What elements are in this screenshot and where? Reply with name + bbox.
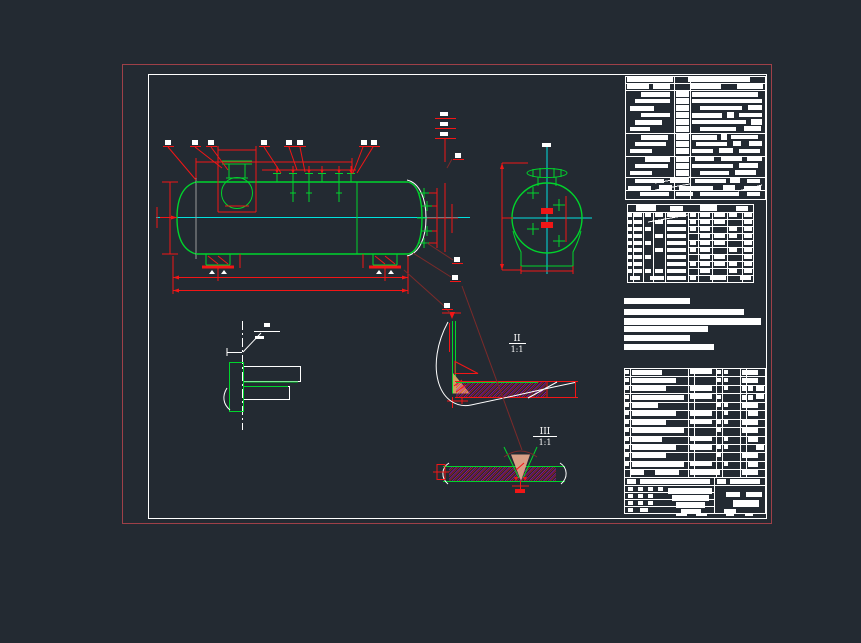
redacted-text	[634, 248, 642, 252]
redacted-text	[744, 213, 752, 217]
redacted-text	[630, 127, 650, 131]
redacted-text	[748, 105, 762, 110]
redacted-text	[717, 479, 726, 484]
redacted-text	[742, 386, 747, 391]
end-view-label	[542, 143, 551, 147]
redacted-text	[690, 419, 712, 424]
end-view-nozzle-marks	[527, 187, 565, 247]
redacted-text	[690, 220, 696, 224]
redacted-text	[634, 227, 642, 231]
redacted-text	[627, 84, 649, 89]
redacted-text	[625, 420, 629, 424]
balloon-number	[261, 140, 267, 145]
redacted-text	[730, 178, 740, 183]
redacted-text	[645, 227, 651, 231]
redacted-text	[690, 213, 696, 217]
technical-characteristics-table	[625, 76, 766, 200]
front-view	[156, 146, 470, 294]
redacted-text	[667, 241, 686, 245]
balloon-number	[454, 257, 460, 262]
redacted-text	[744, 234, 752, 238]
redacted-text	[756, 386, 764, 391]
redacted-note-line	[624, 326, 708, 332]
balloon-number	[192, 140, 198, 145]
redacted-text	[648, 487, 653, 491]
redacted-text	[627, 479, 636, 484]
redacted-text	[724, 403, 728, 407]
redacted-text	[667, 234, 686, 238]
detail-3-scale: 1:1	[539, 438, 552, 447]
redacted-text	[632, 386, 666, 391]
redacted-text	[625, 395, 629, 399]
detail-reference-label	[447, 153, 464, 168]
redacted-text	[717, 428, 721, 432]
redacted-text	[747, 192, 760, 196]
redacted-text	[726, 492, 740, 497]
redacted-text	[667, 213, 686, 217]
balloon-number	[371, 140, 377, 145]
redacted-text	[717, 420, 721, 424]
redacted-text	[690, 248, 696, 252]
redacted-text	[717, 395, 721, 399]
redacted-text	[700, 127, 736, 131]
redacted-text	[744, 241, 752, 245]
redacted-text	[628, 501, 633, 505]
detail-weld-section	[224, 321, 301, 430]
redacted-text	[724, 445, 728, 449]
redacted-text	[655, 248, 663, 252]
redacted-text	[724, 370, 728, 374]
redacted-text	[724, 462, 728, 466]
redacted-text	[635, 164, 668, 168]
redacted-text	[628, 255, 632, 259]
balloon-number	[452, 275, 458, 280]
redacted-text	[724, 378, 728, 382]
redacted-text	[733, 500, 759, 507]
redacted-text	[727, 112, 734, 118]
detail-2-scale: 1:1	[511, 345, 524, 354]
balloon-number	[286, 140, 292, 145]
redacted-text	[744, 126, 761, 131]
redacted-text	[641, 92, 670, 97]
redacted-text	[730, 479, 760, 484]
detail-reference-label	[413, 253, 461, 282]
balloon-number	[165, 140, 171, 145]
redacted-text	[748, 395, 753, 400]
redacted-text	[729, 234, 737, 238]
redacted-text	[635, 99, 670, 103]
stacked-dimension-labels	[435, 112, 456, 162]
redacted-text	[700, 234, 710, 238]
redacted-text	[744, 186, 761, 190]
top-nozzles	[262, 166, 356, 202]
item-balloon	[206, 140, 228, 170]
redacted-text	[717, 403, 721, 407]
redacted-text	[714, 220, 725, 224]
redacted-text	[744, 227, 752, 231]
redacted-text	[645, 157, 670, 162]
redacted-text	[692, 99, 762, 103]
redacted-text	[717, 445, 721, 449]
redacted-text	[655, 234, 663, 238]
redacted-text	[714, 255, 725, 259]
redacted-text	[676, 134, 689, 140]
redacted-text	[638, 501, 643, 505]
parts-list-table	[624, 368, 766, 478]
redacted-text	[645, 241, 651, 245]
redacted-text	[748, 462, 758, 467]
redacted-text	[676, 170, 689, 176]
redacted-text	[700, 269, 710, 273]
redacted-text	[731, 135, 758, 139]
redacted-text	[681, 509, 701, 513]
redacted-text	[695, 179, 726, 183]
redacted-text	[700, 227, 710, 231]
redacted-text	[634, 234, 642, 238]
redacted-text	[641, 135, 668, 140]
redacted-text	[667, 276, 686, 280]
redacted-text	[748, 386, 753, 391]
redacted-text	[676, 126, 689, 132]
redacted-text	[636, 205, 656, 211]
redacted-text	[742, 403, 758, 408]
redacted-text	[714, 262, 725, 266]
redacted-text	[628, 269, 632, 273]
redacted-text	[742, 470, 758, 475]
redacted-text	[717, 378, 721, 382]
item-balloon	[284, 140, 297, 170]
redacted-text	[628, 220, 632, 224]
redacted-text	[667, 227, 686, 231]
redacted-text	[721, 134, 727, 140]
redacted-text	[723, 185, 735, 190]
redacted-text	[640, 508, 648, 512]
redacted-text	[676, 112, 689, 118]
redacted-text	[690, 394, 712, 399]
redacted-text	[690, 369, 712, 374]
redacted-text	[736, 206, 748, 211]
redacted-note-line	[624, 344, 714, 350]
redacted-text	[700, 241, 710, 245]
redacted-text	[729, 269, 737, 273]
redacted-text	[690, 227, 696, 231]
detail-2-label: II	[513, 334, 521, 344]
redacted-text	[696, 513, 707, 516]
redacted-text	[740, 276, 751, 280]
redacted-text	[627, 77, 673, 82]
redacted-text	[676, 105, 689, 111]
redacted-text	[625, 411, 629, 415]
redacted-text	[628, 213, 632, 217]
nozzle-table	[627, 205, 754, 283]
detail-3: III 1:1	[433, 427, 566, 493]
redacted-text	[634, 269, 642, 273]
redacted-note-line	[624, 298, 690, 304]
redacted-text	[744, 255, 752, 259]
redacted-text	[690, 386, 712, 391]
redacted-text	[696, 142, 727, 146]
redacted-text	[653, 84, 670, 89]
redacted-text	[710, 276, 726, 280]
redacted-text	[628, 487, 633, 491]
redacted-text	[632, 370, 662, 375]
redacted-text	[632, 428, 684, 433]
redacted-text	[737, 84, 763, 89]
redacted-text	[628, 508, 633, 512]
redacted-text	[635, 120, 662, 125]
redacted-text	[658, 487, 663, 491]
redacted-text	[751, 119, 762, 125]
redacted-text	[625, 437, 629, 441]
detail-3-label: III	[540, 427, 551, 437]
item-balloon	[190, 140, 222, 168]
redacted-text	[692, 164, 733, 168]
redacted-text	[690, 445, 712, 450]
redacted-text	[739, 113, 762, 117]
redacted-text	[628, 186, 651, 190]
redacted-text	[690, 262, 696, 266]
redacted-text	[625, 445, 629, 449]
redacted-text	[648, 501, 653, 505]
redacted-text	[729, 213, 737, 217]
redacted-text	[690, 436, 712, 441]
redacted-text	[692, 135, 717, 140]
redacted-text	[645, 255, 651, 259]
redacted-text	[733, 141, 741, 146]
redacted-text	[688, 77, 750, 82]
redacted-text	[745, 513, 753, 516]
redacted-text	[676, 148, 689, 154]
redacted-text	[692, 92, 758, 97]
redacted-text	[625, 378, 629, 382]
redacted-text	[700, 220, 710, 224]
redacted-text	[625, 428, 629, 432]
item-balloon	[259, 140, 281, 173]
detail-2: II 1:1	[436, 312, 578, 408]
redacted-note-line	[624, 318, 761, 325]
redacted-text	[742, 378, 758, 383]
redacted-text	[630, 470, 644, 475]
technical-notes	[624, 298, 761, 350]
redacted-text	[655, 269, 663, 273]
redacted-text	[724, 420, 728, 424]
redacted-text	[634, 241, 642, 245]
redacted-text	[676, 192, 693, 196]
redacted-text	[672, 495, 709, 501]
redacted-text	[641, 113, 670, 117]
redacted-text	[729, 262, 737, 266]
saddle-left	[202, 254, 240, 274]
redacted-note-line	[624, 335, 690, 341]
redacted-text	[632, 395, 684, 400]
redacted-text	[692, 149, 713, 153]
redacted-text	[625, 370, 629, 374]
redacted-text	[676, 91, 689, 97]
redacted-text	[632, 445, 676, 450]
redacted-text	[724, 411, 728, 415]
redacted-text	[724, 386, 728, 390]
cad-drawing-canvas: II 1:1 III 1:1	[0, 0, 861, 643]
redacted-text	[625, 403, 629, 407]
redacted-text	[712, 470, 720, 475]
redacted-text	[739, 149, 760, 153]
redacted-text	[676, 141, 689, 147]
redacted-text	[628, 234, 632, 238]
redacted-text	[640, 479, 710, 484]
redacted-text	[628, 241, 632, 245]
redacted-text	[724, 509, 736, 513]
redacted-text	[735, 170, 756, 175]
redacted-text	[742, 370, 758, 375]
redacted-text	[667, 269, 686, 273]
redacted-text	[635, 142, 666, 146]
redacted-text	[667, 248, 686, 252]
redacted-text	[756, 444, 764, 450]
redacted-text	[679, 186, 713, 190]
redacted-text	[700, 262, 710, 266]
redacted-text	[650, 276, 664, 280]
redacted-text	[632, 437, 662, 442]
balloon-number	[297, 140, 303, 145]
redacted-text	[726, 513, 734, 516]
redacted-text	[628, 248, 632, 252]
redacted-text	[667, 220, 686, 224]
redacted-text	[692, 120, 746, 124]
redacted-text	[746, 492, 762, 497]
redacted-text	[676, 502, 705, 508]
redacted-text	[625, 386, 629, 390]
redacted-text	[729, 227, 737, 231]
item-balloon	[357, 140, 380, 173]
redacted-text	[700, 213, 710, 217]
redacted-text	[676, 163, 689, 169]
redacted-text	[632, 462, 684, 467]
redacted-text	[676, 156, 689, 162]
redacted-text	[700, 248, 710, 252]
redacted-text	[690, 461, 712, 466]
redacted-text	[676, 513, 687, 516]
redacted-text	[634, 213, 642, 217]
redacted-text	[714, 213, 725, 217]
redacted-text	[667, 255, 686, 259]
redacted-text	[676, 98, 689, 104]
redacted-text	[638, 487, 643, 491]
redacted-text	[748, 437, 758, 442]
redacted-text	[717, 453, 721, 457]
redacted-text	[691, 84, 721, 89]
redacted-text	[747, 179, 760, 183]
redacted-text	[630, 149, 652, 153]
redacted-text	[739, 163, 758, 168]
redacted-text	[717, 370, 721, 374]
redacted-text	[630, 276, 640, 280]
manway	[218, 146, 256, 212]
redacted-text	[655, 470, 679, 475]
redacted-text	[749, 141, 762, 146]
balloon-number	[361, 140, 367, 145]
redacted-text	[700, 106, 742, 110]
redacted-text	[640, 192, 669, 196]
balloon-number	[455, 153, 461, 158]
redacted-text	[628, 262, 632, 266]
redacted-text	[676, 119, 689, 125]
redacted-text	[714, 234, 725, 238]
redacted-text	[744, 248, 752, 252]
redacted-text	[744, 269, 752, 273]
redacted-text	[724, 437, 728, 441]
redacted-text	[742, 428, 758, 433]
redacted-text	[634, 262, 642, 266]
redacted-text	[700, 205, 717, 211]
redacted-text	[645, 213, 651, 217]
redacted-text	[655, 213, 663, 217]
tables-and-notes	[624, 76, 766, 516]
redacted-text	[648, 494, 653, 498]
redacted-text	[695, 157, 714, 161]
redacted-text	[625, 453, 629, 457]
redacted-text	[719, 148, 733, 153]
redacted-text	[742, 395, 747, 400]
redacted-text	[729, 248, 737, 252]
redacted-text	[628, 494, 633, 498]
redacted-text	[634, 255, 642, 259]
detail-reference-label	[404, 270, 453, 310]
redacted-text	[632, 453, 666, 458]
balloon-number	[208, 140, 214, 145]
redacted-text	[690, 241, 696, 245]
redacted-text	[690, 276, 696, 280]
redacted-text	[638, 494, 643, 498]
redacted-text	[700, 171, 729, 175]
redacted-text	[632, 378, 676, 383]
redacted-note-line	[624, 309, 744, 315]
redacted-text	[668, 488, 712, 494]
redacted-text	[670, 206, 683, 211]
redacted-text	[632, 403, 658, 408]
redacted-text	[632, 411, 676, 416]
end-view	[500, 146, 592, 274]
redacted-text	[630, 106, 654, 111]
redacted-text	[628, 227, 632, 231]
redacted-text	[645, 269, 651, 273]
redacted-text	[742, 420, 758, 425]
redacted-text	[756, 394, 764, 399]
redacted-text	[692, 113, 722, 118]
redacted-text	[700, 255, 710, 259]
redacted-text	[714, 241, 725, 245]
redacted-text	[748, 411, 758, 416]
redacted-text	[667, 262, 686, 266]
redacted-text	[747, 157, 762, 161]
redacted-text	[690, 411, 712, 416]
redacted-text	[630, 171, 652, 175]
redacted-text	[744, 220, 752, 224]
head-nozzles	[417, 183, 458, 252]
drawing-sheet: II 1:1 III 1:1	[0, 0, 861, 643]
title-block	[624, 477, 766, 516]
redacted-text	[700, 192, 739, 196]
balloon-number	[444, 303, 450, 308]
saddle-right	[363, 254, 401, 274]
redacted-text	[632, 420, 666, 425]
redacted-text	[634, 220, 642, 224]
redacted-text	[625, 462, 629, 466]
redacted-text	[690, 470, 712, 475]
redacted-text	[742, 453, 758, 458]
item-balloon	[295, 140, 306, 172]
redacted-text	[721, 156, 742, 161]
redacted-text	[744, 262, 752, 266]
